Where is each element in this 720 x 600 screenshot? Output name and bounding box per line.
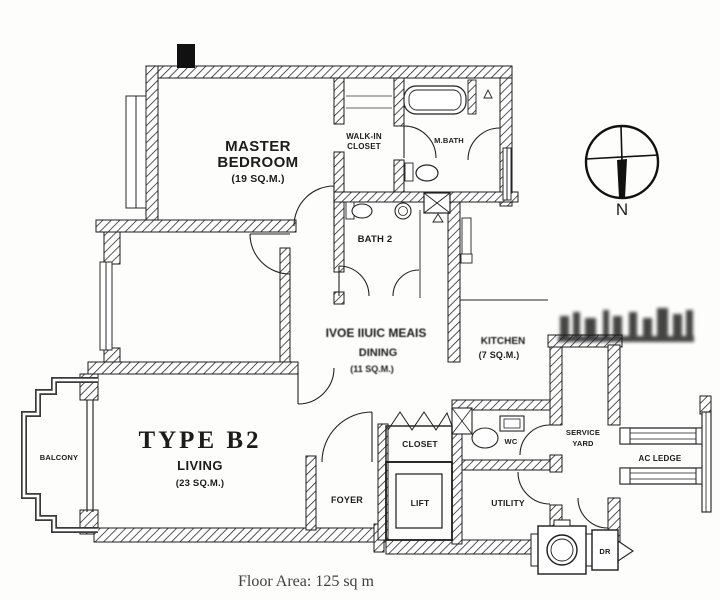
scan-smudge — [558, 308, 694, 342]
label-ac-ledge: AC LEDGE — [639, 454, 682, 463]
label-closet: CLOSET — [402, 439, 438, 449]
walk-in-closet-shelves — [346, 96, 392, 108]
floor-plan-drawing: MASTER BEDROOM (19 SQ.M.) WALK-IN CLOSET… — [0, 0, 720, 600]
label-unit-type: TYPE B2 — [138, 427, 261, 454]
label-living: LIVING — [177, 458, 223, 473]
sliding-door — [87, 400, 93, 512]
closet-lift — [386, 412, 452, 540]
bath2-fixtures — [346, 202, 420, 298]
label-master-bath: M.BATH — [434, 136, 464, 145]
floor-plan-page: MASTER BEDROOM (19 SQ.M.) WALK-IN CLOSET… — [0, 0, 720, 600]
label-walk-in-closet-line1: WALK-IN — [346, 132, 382, 141]
label-kitchen-area: (7 SQ.M.) — [479, 350, 520, 360]
label-dryer: DR — [599, 547, 611, 556]
label-dining: DINING — [359, 347, 398, 359]
structural-column — [177, 44, 195, 68]
label-living-area: (23 SQ.M.) — [176, 478, 224, 489]
kitchen-fixtures — [460, 218, 548, 300]
label-walk-in-closet-line2: CLOSET — [347, 142, 381, 151]
label-wc: WC — [505, 437, 518, 446]
label-bath-2: BATH 2 — [358, 234, 393, 245]
label-kitchen: KITCHEN — [481, 336, 525, 347]
label-service-yard-line1: SERVICE — [566, 428, 600, 437]
label-utility: UTILITY — [491, 498, 525, 508]
label-floor-area: Floor Area: 125 sq m — [238, 573, 375, 590]
label-compass-north: N — [616, 200, 628, 219]
compass-icon — [586, 126, 658, 198]
label-master-bedroom-line2: BEDROOM — [217, 154, 298, 171]
label-lift: LIFT — [411, 498, 430, 508]
label-service-yard-line2: YARD — [572, 439, 594, 448]
label-dining-overprint: IVOE IIUIC MEAIS — [326, 326, 427, 340]
label-master-bedroom-line1: MASTER — [225, 138, 291, 155]
label-balcony: BALCONY — [40, 453, 78, 462]
label-master-bedroom-area: (19 SQ.M.) — [231, 173, 284, 185]
label-foyer: FOYER — [331, 495, 363, 505]
label-dining-area: (11 SQ.M.) — [350, 364, 394, 374]
